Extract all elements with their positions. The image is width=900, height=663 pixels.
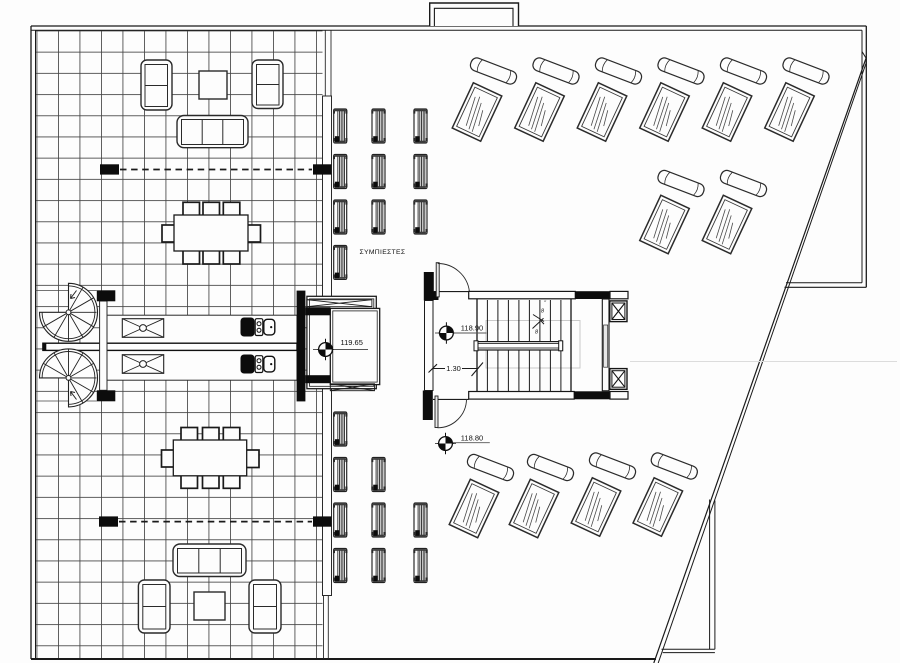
svg-text:119.65: 119.65	[341, 338, 363, 347]
svg-text:ΣΥΜΠΙΕΣΤΕΣ: ΣΥΜΠΙΕΣΤΕΣ	[360, 249, 406, 256]
svg-text:118.80: 118.80	[461, 434, 483, 443]
svg-text:118.90: 118.90	[461, 323, 483, 332]
svg-text:1.30: 1.30	[446, 364, 461, 373]
